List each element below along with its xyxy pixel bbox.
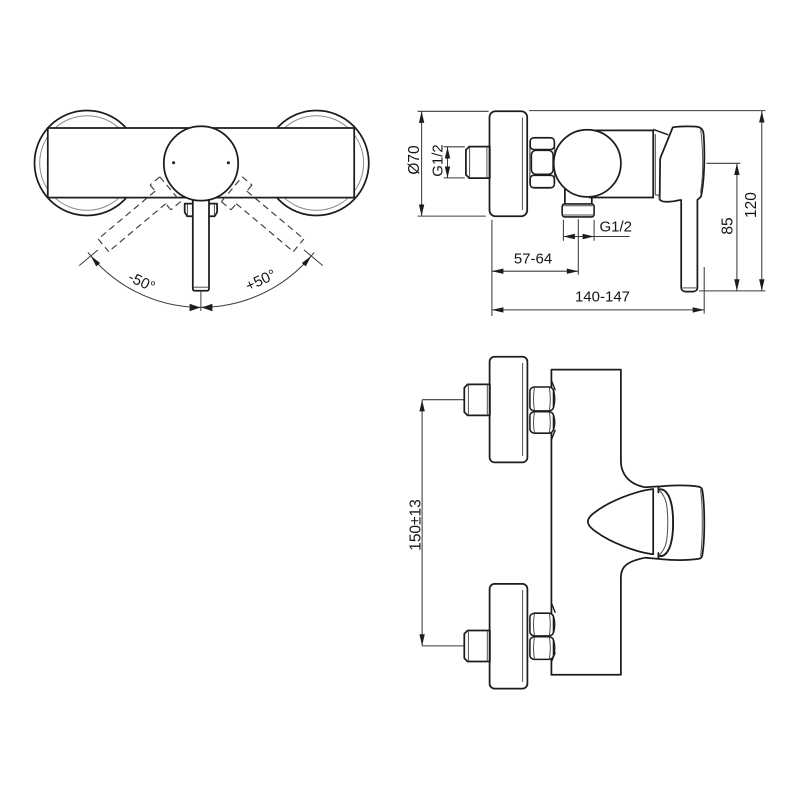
svg-text:85: 85 [720, 217, 737, 234]
svg-text:G1/2: G1/2 [430, 144, 447, 177]
svg-text:120: 120 [743, 192, 760, 218]
svg-text:G1/2: G1/2 [600, 219, 633, 236]
svg-text:Ø70: Ø70 [406, 145, 423, 175]
svg-text:57-64: 57-64 [514, 251, 552, 268]
svg-text:140-147: 140-147 [575, 289, 630, 306]
svg-text:150±13: 150±13 [407, 499, 424, 551]
